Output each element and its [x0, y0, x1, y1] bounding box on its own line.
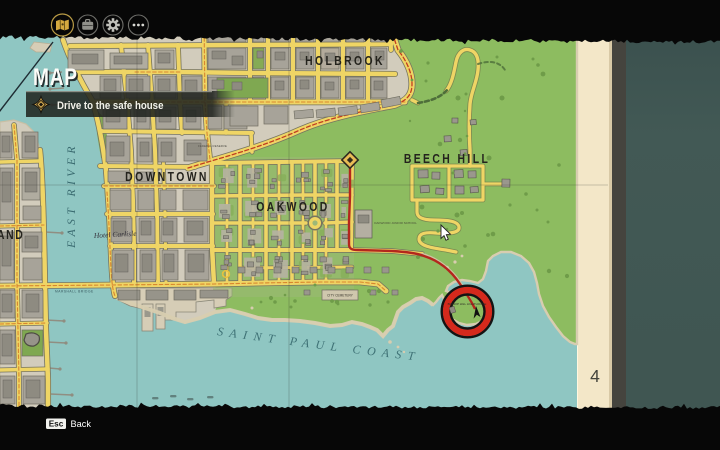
svg-text:FEDERAL RESERVE: FEDERAL RESERVE [198, 144, 227, 148]
svg-text:OAKWOOD: OAKWOOD [256, 200, 329, 214]
svg-text:BEECH HILL: BEECH HILL [404, 152, 490, 166]
svg-text:Back: Back [71, 419, 92, 429]
svg-text:Drive to the safe house: Drive to the safe house [57, 99, 164, 112]
svg-text:DOWNTOWN: DOWNTOWN [125, 170, 209, 184]
svg-text:HOLBROOK: HOLBROOK [305, 54, 385, 68]
svg-text:MARSHALL BRIDGE: MARSHALL BRIDGE [55, 289, 94, 293]
svg-text:4: 4 [590, 366, 600, 386]
svg-text:Esc: Esc [49, 420, 64, 429]
svg-text:CITY CEMETERY: CITY CEMETERY [327, 294, 354, 298]
svg-text:AND: AND [0, 228, 24, 242]
svg-text:OAKWOOD JUNIOR SCHOOL: OAKWOOD JUNIOR SCHOOL [374, 221, 417, 225]
svg-text:BISHOP HILL LIGHTHOUSE: BISHOP HILL LIGHTHOUSE [448, 302, 487, 306]
svg-text:MAP: MAP [33, 63, 78, 91]
svg-text:EAST RIVER: EAST RIVER [66, 142, 78, 249]
